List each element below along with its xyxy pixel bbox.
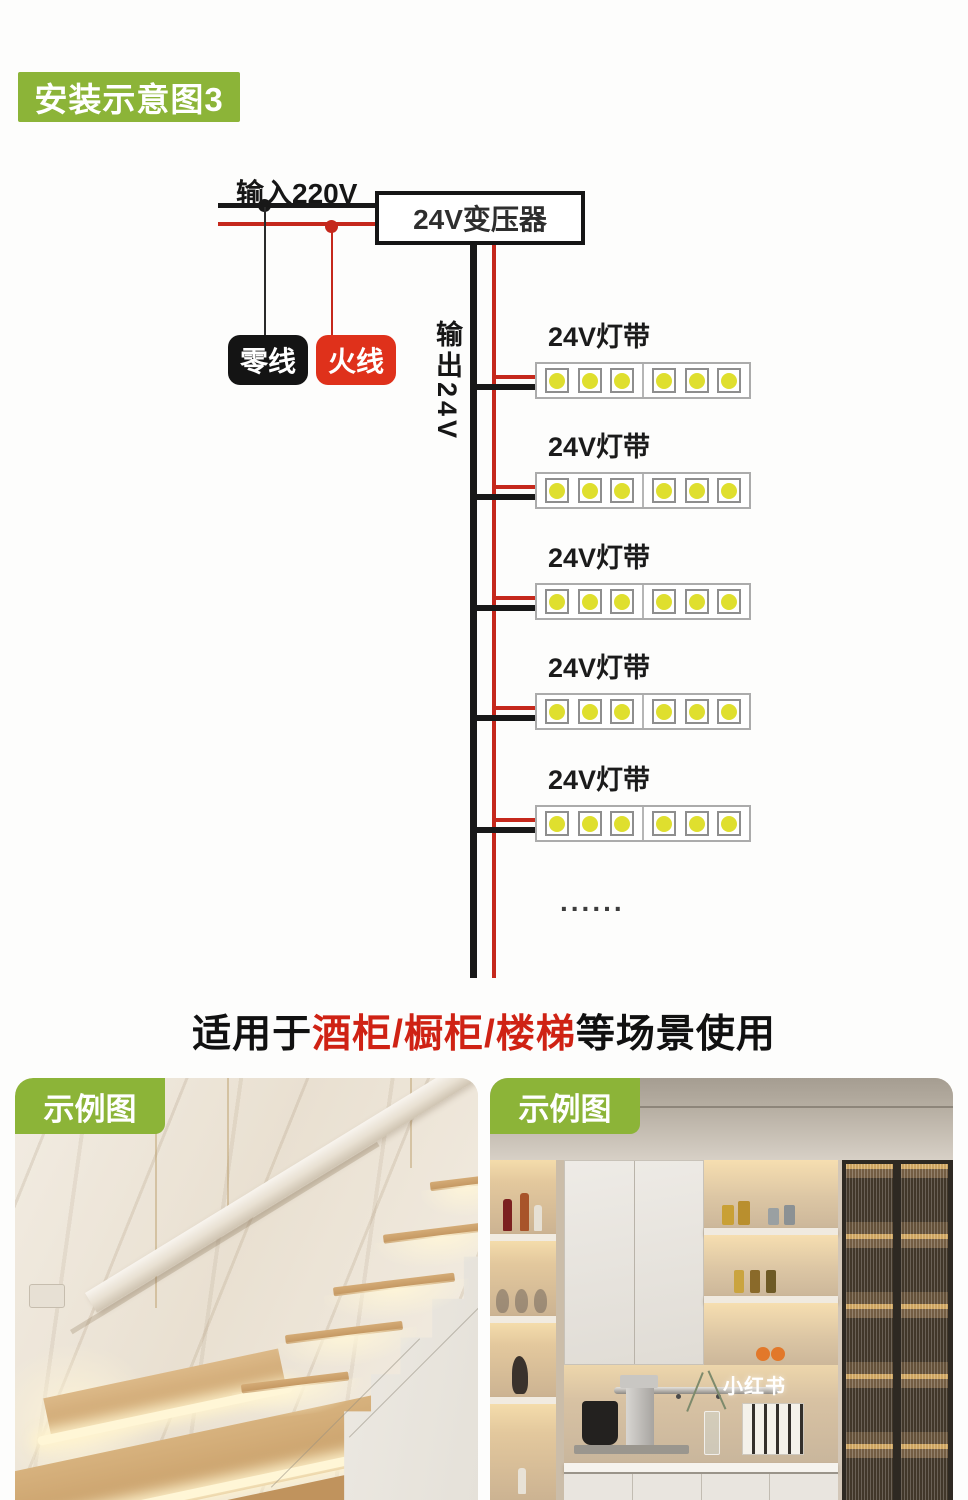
led-icon <box>652 811 676 836</box>
led-group <box>644 807 749 840</box>
led-icon <box>685 478 709 503</box>
strip-negative-wire <box>470 384 538 390</box>
output-bus-black <box>470 245 477 978</box>
wine-glass <box>515 1289 528 1313</box>
led-icon <box>610 478 634 503</box>
led-group <box>644 585 749 618</box>
upper-cabinet-doors <box>564 1160 704 1365</box>
glass-vase <box>704 1411 720 1455</box>
shelf-board <box>490 1316 556 1323</box>
example-photo-cabinet: 小红书 示例图 <box>490 1078 953 1500</box>
door-seam <box>634 1161 635 1364</box>
scene-title-highlight: 酒柜/橱柜/楼梯 <box>312 1013 576 1056</box>
led-icon <box>652 699 676 724</box>
led-icon <box>717 368 741 393</box>
led-icon <box>610 368 634 393</box>
coffee-machine-tower <box>626 1383 654 1445</box>
shelf-niche <box>704 1235 838 1296</box>
led-icon <box>545 699 569 724</box>
led-group <box>644 695 749 728</box>
led-icon <box>610 699 634 724</box>
scene-title: 适用于酒柜/橱柜/楼梯等场景使用 <box>0 1003 968 1059</box>
led-icon <box>717 699 741 724</box>
led-icon <box>578 699 602 724</box>
bottle <box>766 1270 776 1293</box>
led-icon <box>685 699 709 724</box>
strip-negative-wire <box>470 494 538 500</box>
shelf-niche <box>704 1160 838 1228</box>
candle <box>518 1468 526 1494</box>
led-icon <box>545 589 569 614</box>
example-badge: 示例图 <box>15 1078 165 1134</box>
jar <box>768 1208 779 1225</box>
live-wire-badge: 火线 <box>316 335 396 385</box>
strip-label: 24V灯带 <box>548 536 650 575</box>
glass-door-panel <box>901 1164 948 1500</box>
output-voltage-label: 输出24V <box>428 320 467 442</box>
shelf-board <box>490 1234 556 1241</box>
fluted-glass-cabinet <box>842 1160 953 1500</box>
door-seam <box>769 1474 770 1500</box>
led-icon <box>717 811 741 836</box>
strip-positive-wire <box>495 706 538 710</box>
example-photo-stairs: 示例图 <box>15 1078 478 1500</box>
neutral-input-wire <box>218 203 378 208</box>
example-badge: 示例图 <box>490 1078 640 1134</box>
countertop <box>564 1463 838 1472</box>
counter-niche: 小红书 <box>564 1365 838 1463</box>
light-switch <box>29 1284 65 1308</box>
led-group <box>537 807 642 840</box>
led-strip <box>535 472 751 509</box>
wine-bottle <box>503 1199 512 1231</box>
left-shelf-column <box>490 1160 556 1500</box>
led-icon <box>545 811 569 836</box>
led-icon <box>685 368 709 393</box>
led-strip <box>535 362 751 399</box>
glass-door-panel <box>846 1164 893 1500</box>
led-group <box>644 364 749 397</box>
bottle <box>734 1270 744 1293</box>
neutral-drop-wire <box>264 207 266 335</box>
led-group <box>537 364 642 397</box>
live-drop-wire <box>331 228 333 335</box>
led-icon <box>578 811 602 836</box>
scene-title-suffix: 等场景使用 <box>576 1013 776 1056</box>
wine-glass <box>496 1289 509 1313</box>
strip-positive-wire <box>495 818 538 822</box>
watermark-text: 小红书 <box>723 1370 786 1399</box>
shelf-niche <box>490 1404 556 1500</box>
jar <box>784 1205 795 1225</box>
shelf-niche <box>490 1241 556 1316</box>
shelf-board <box>490 1397 556 1404</box>
strip-label: 24V灯带 <box>548 315 650 354</box>
led-icon <box>652 589 676 614</box>
strip-positive-wire <box>495 596 538 600</box>
transformer-box: 24V变压器 <box>375 191 585 245</box>
coffee-machine-base <box>574 1445 689 1454</box>
led-icon <box>610 811 634 836</box>
shelf-board <box>704 1296 838 1303</box>
door-seam <box>701 1474 702 1500</box>
wine-glass <box>534 1289 547 1313</box>
strip-positive-wire <box>495 485 538 489</box>
led-icon <box>578 478 602 503</box>
wine-bottle <box>534 1205 542 1231</box>
jar <box>722 1205 734 1225</box>
jar <box>738 1201 750 1225</box>
led-group <box>537 585 642 618</box>
led-icon <box>652 368 676 393</box>
cabinet-divider-wall <box>556 1160 564 1500</box>
rail-hook <box>676 1394 681 1399</box>
ceiling-shadow-line <box>640 1106 953 1108</box>
books <box>742 1403 804 1455</box>
bottle <box>750 1270 760 1293</box>
strip-negative-wire <box>470 827 538 833</box>
led-icon <box>545 368 569 393</box>
coffee-machine-top <box>620 1375 658 1388</box>
led-icon <box>685 589 709 614</box>
strip-label: 24V灯带 <box>548 425 650 464</box>
led-icon <box>717 478 741 503</box>
led-icon <box>578 368 602 393</box>
coffee-machine-kettle <box>582 1401 618 1445</box>
page: 安装示意图3 输入220V 零线 火线 24V变压器 输出24V 24V灯带 2… <box>0 0 968 1500</box>
strip-negative-wire <box>470 605 538 611</box>
led-group <box>537 474 642 507</box>
strip-positive-wire <box>495 375 538 379</box>
led-icon <box>652 478 676 503</box>
live-input-wire <box>218 222 378 226</box>
strip-label: 24V灯带 <box>548 758 650 797</box>
orange-fruit <box>771 1347 785 1361</box>
strip-negative-wire <box>470 715 538 721</box>
led-icon <box>685 811 709 836</box>
orange-fruit <box>756 1347 770 1361</box>
center-shelf-block <box>704 1160 838 1365</box>
scene-title-prefix: 适用于 <box>192 1013 312 1056</box>
led-group <box>644 474 749 507</box>
led-icon <box>578 589 602 614</box>
door-seam <box>632 1474 633 1500</box>
strip-label: 24V灯带 <box>548 646 650 685</box>
shelf-board <box>704 1228 838 1235</box>
base-cabinet-doors <box>564 1472 838 1500</box>
led-strip <box>535 805 751 842</box>
led-icon <box>610 589 634 614</box>
led-strip <box>535 693 751 730</box>
figurine <box>512 1356 528 1394</box>
neutral-wire-badge: 零线 <box>228 335 308 385</box>
wine-bottle <box>520 1193 529 1231</box>
shelf-niche <box>490 1323 556 1397</box>
output-bus-red <box>492 245 496 978</box>
shelf-niche <box>490 1160 556 1234</box>
led-group <box>537 695 642 728</box>
led-strip <box>535 583 751 620</box>
led-icon <box>545 478 569 503</box>
shelf-niche <box>704 1303 838 1365</box>
more-strips-ellipsis: ...... <box>560 886 625 918</box>
led-icon <box>717 589 741 614</box>
